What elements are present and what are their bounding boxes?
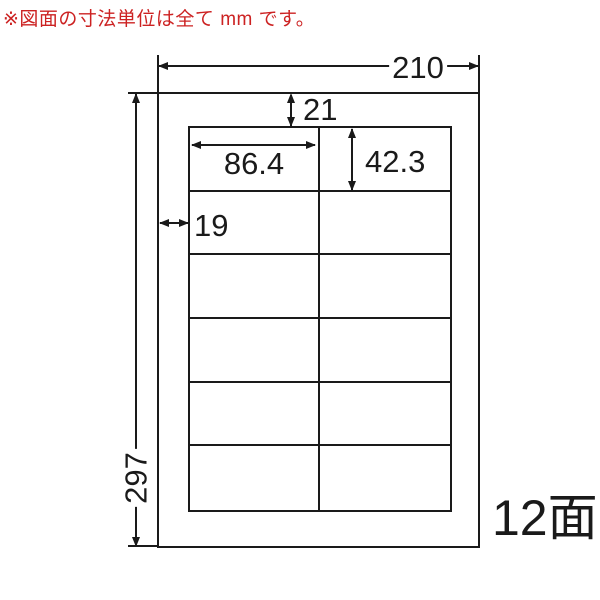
arrowhead-left-icon — [159, 219, 169, 227]
label-cell — [320, 192, 450, 256]
dimension-label-left-margin: 19 — [191, 210, 231, 241]
label-sheet-dimension-diagram: ※図面の寸法単位は全て mm です。 210 297 21 86.4 4 — [0, 0, 600, 600]
label-cell — [320, 319, 450, 383]
dimension-label-height: 297 — [121, 449, 152, 507]
arrowhead-left-icon — [158, 62, 168, 70]
unit-note: ※図面の寸法単位は全て mm です。 — [3, 4, 315, 31]
arrowhead-up-icon — [348, 128, 356, 138]
arrowhead-up-icon — [287, 93, 295, 103]
arrowhead-right-icon — [179, 219, 189, 227]
extension-line — [478, 55, 480, 92]
label-cell — [320, 446, 450, 510]
label-grid — [188, 126, 452, 512]
label-cell — [190, 319, 320, 383]
dimension-label-top-margin: 21 — [300, 94, 340, 125]
arrowhead-up-icon — [132, 93, 140, 103]
label-cell — [190, 383, 320, 447]
arrowhead-right-icon — [306, 141, 316, 149]
dimension-label-width: 210 — [389, 52, 447, 83]
dimension-label-label-width: 86.4 — [221, 148, 287, 179]
label-cell — [320, 255, 450, 319]
label-cell — [320, 383, 450, 447]
arrowhead-left-icon — [191, 141, 201, 149]
face-count-label: 12面 — [492, 493, 598, 543]
arrowhead-down-icon — [132, 537, 140, 547]
arrowhead-down-icon — [348, 181, 356, 191]
extension-line — [157, 55, 159, 92]
arrowhead-right-icon — [469, 62, 479, 70]
dimension-label-label-height: 42.3 — [362, 146, 428, 177]
label-cell — [190, 255, 320, 319]
label-cell — [190, 446, 320, 510]
arrowhead-down-icon — [287, 117, 295, 127]
